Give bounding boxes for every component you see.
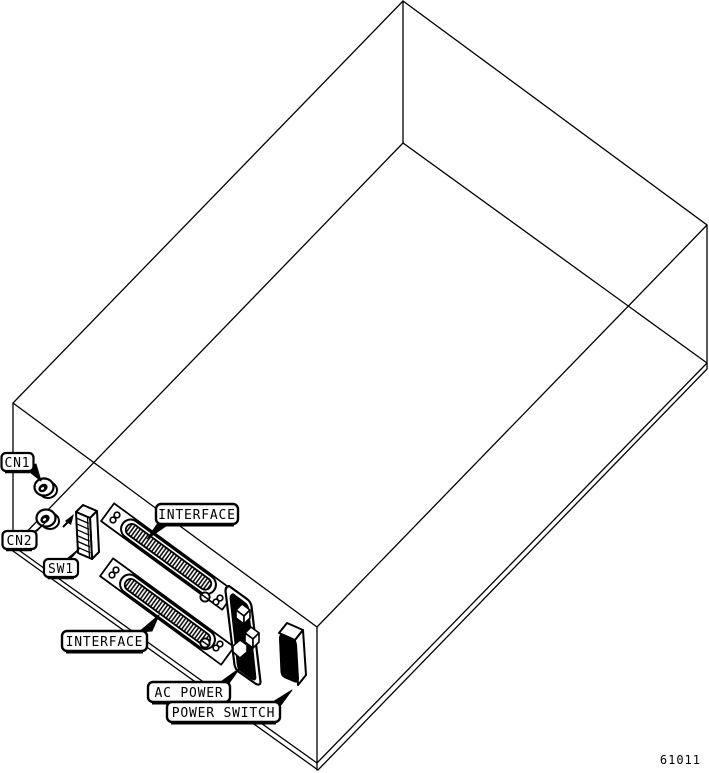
callout-interface-bottom: INTERFACE xyxy=(62,631,147,653)
callout-cn2: CN2 xyxy=(3,531,37,550)
callout-sw1: SW1 xyxy=(44,559,78,578)
switch-rocker xyxy=(280,635,298,682)
power-switch-label: POWER SWITCH xyxy=(172,706,276,721)
interface-bottom-leader xyxy=(139,615,159,632)
ac-power-label: AC POWER xyxy=(154,686,223,701)
ac-power-inlet xyxy=(226,586,261,685)
cn1-label: CN1 xyxy=(5,456,31,471)
cn1-connector xyxy=(35,479,58,499)
callout-interface-top: INTERFACE xyxy=(156,504,238,526)
top-face-edges xyxy=(13,1,707,551)
enclosure-wireframe xyxy=(13,1,707,770)
cn2-label: CN2 xyxy=(7,534,33,549)
sw1-dip-switch xyxy=(63,505,99,559)
callout-ac-power: AC POWER xyxy=(148,682,230,704)
callout-power-switch: POWER SWITCH xyxy=(167,702,280,724)
interface-bottom-label: INTERFACE xyxy=(66,635,144,650)
hidden-bottom-edges xyxy=(13,143,707,546)
callout-cn1: CN1 xyxy=(2,453,34,472)
figure-number: 61011 xyxy=(660,753,701,767)
rear-panel-diagram: CN1 CN2 SW1 INTERFACE INTERFACE AC POWER xyxy=(0,0,709,773)
interface-top-label: INTERFACE xyxy=(158,508,236,523)
sw1-label: SW1 xyxy=(48,562,74,577)
power-switch xyxy=(279,623,306,685)
diagram-canvas: CN1 CN2 SW1 INTERFACE INTERFACE AC POWER xyxy=(0,0,709,773)
cn2-connector xyxy=(37,510,60,530)
